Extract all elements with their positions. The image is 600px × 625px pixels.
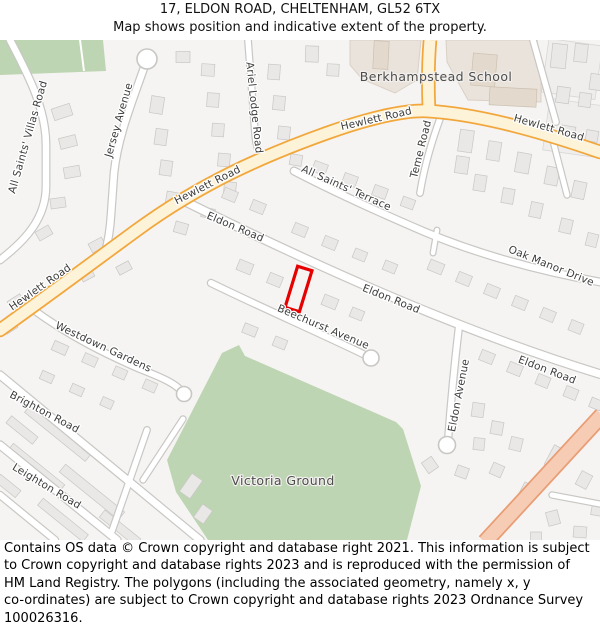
- building: [277, 126, 290, 140]
- building: [458, 129, 475, 153]
- map-header: 17, ELDON ROAD, CHELTENHAM, GL52 6TX Map…: [0, 0, 600, 40]
- building: [531, 532, 542, 540]
- building: [50, 197, 66, 209]
- building: [217, 153, 230, 167]
- building: [490, 421, 504, 436]
- street-map[interactable]: All Saints' Villas RoadJersey AvenueArie…: [0, 40, 600, 540]
- building: [489, 87, 537, 107]
- building: [149, 96, 164, 115]
- building: [201, 64, 215, 77]
- building: [327, 64, 340, 77]
- building: [471, 402, 485, 418]
- building: [529, 201, 544, 218]
- property-map-page: 17, ELDON ROAD, CHELTENHAM, GL52 6TX Map…: [0, 0, 600, 625]
- copyright-line: 100026316.: [0, 610, 600, 625]
- building: [305, 46, 319, 62]
- building: [473, 174, 487, 192]
- building: [578, 92, 592, 108]
- building: [267, 64, 280, 80]
- copyright-line: Contains OS data © Crown copyright and d…: [0, 540, 600, 557]
- page-title: 17, ELDON ROAD, CHELTENHAM, GL52 6TX: [0, 0, 600, 19]
- building: [176, 52, 190, 63]
- building: [473, 437, 485, 450]
- copyright-line: to Crown copyright and database rights 2…: [0, 557, 600, 574]
- building: [514, 152, 531, 174]
- page-subtitle: Map shows position and indicative extent…: [0, 19, 600, 36]
- map-canvas[interactable]: All Saints' Villas RoadJersey AvenueArie…: [0, 40, 600, 540]
- building: [289, 154, 303, 167]
- building: [559, 218, 574, 234]
- building: [550, 43, 567, 68]
- copyright-text: Contains OS data © Crown copyright and d…: [0, 540, 600, 625]
- building: [212, 123, 225, 137]
- building: [555, 86, 570, 104]
- copyright-line: co-ordinates) are subject to Crown copyr…: [0, 592, 600, 609]
- building: [207, 93, 220, 108]
- building: [501, 188, 515, 205]
- building: [574, 43, 589, 62]
- copyright-line: HM Land Registry. The polygons (includin…: [0, 575, 600, 592]
- building: [486, 141, 502, 162]
- area-label: Berkhampstead School: [360, 69, 513, 84]
- building: [573, 526, 587, 538]
- building: [509, 436, 524, 452]
- building: [589, 73, 600, 91]
- building: [272, 96, 285, 111]
- building: [63, 165, 81, 179]
- building: [154, 128, 168, 146]
- building: [373, 41, 389, 70]
- building: [159, 160, 173, 177]
- building: [454, 156, 469, 175]
- area-label: Victoria Ground: [231, 473, 334, 488]
- copyright-footer: Contains OS data © Crown copyright and d…: [0, 540, 600, 625]
